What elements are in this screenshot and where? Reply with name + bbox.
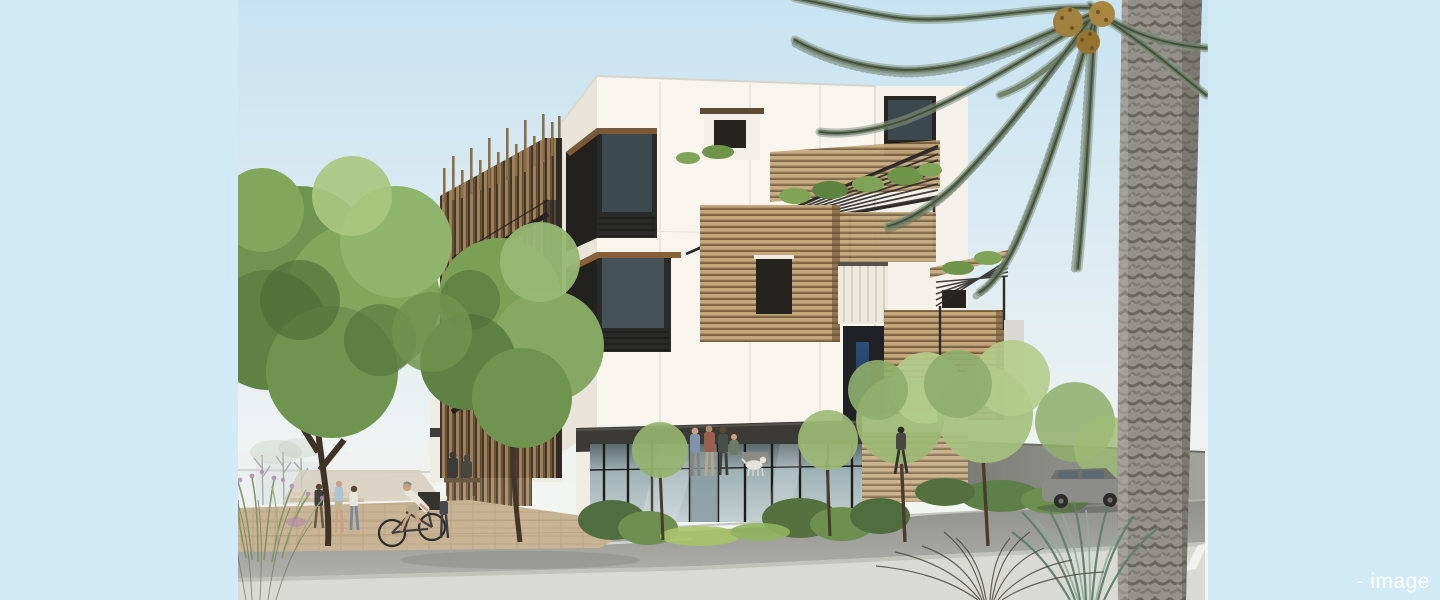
left-band: [0, 0, 238, 600]
wood-screen-band: [840, 212, 936, 262]
corner-window-upper: [566, 128, 657, 252]
image-caption: - image: [1356, 571, 1430, 592]
rendering-illustration: [0, 0, 1440, 600]
wood-screen-left: [700, 205, 840, 342]
balcony-rail-block: [838, 262, 888, 324]
hero-image: - image: [0, 0, 1440, 600]
right-band: [1208, 0, 1440, 600]
